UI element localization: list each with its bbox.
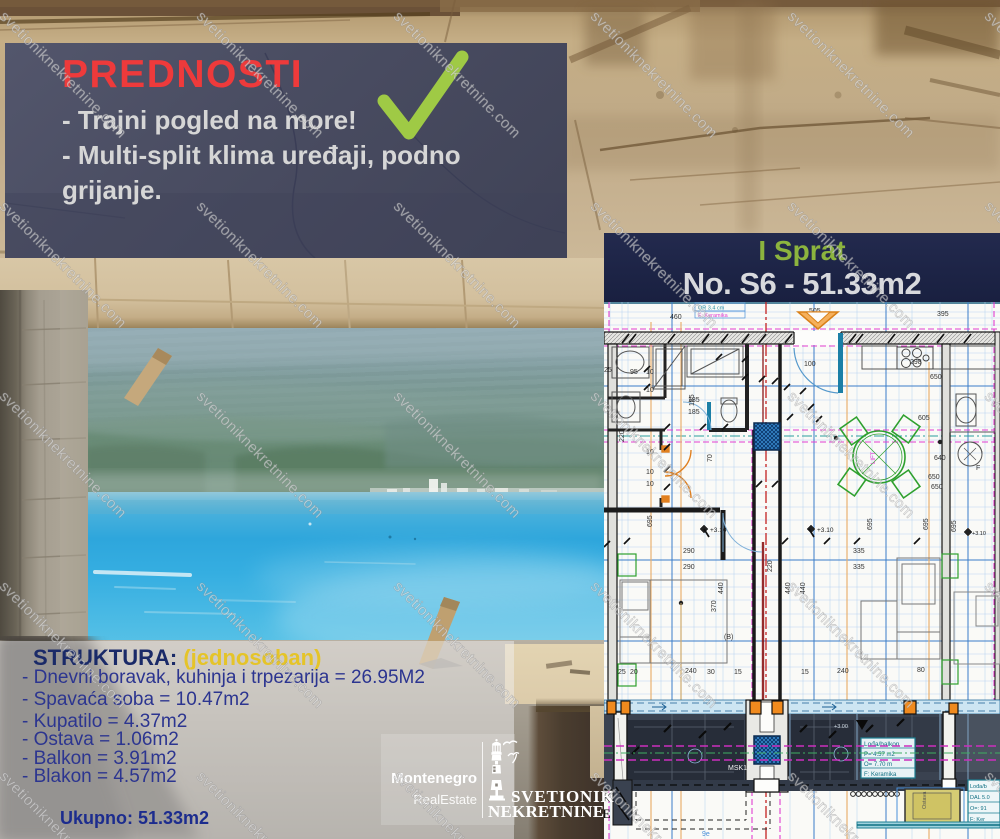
svg-text:15: 15	[734, 669, 742, 676]
svg-text:LIFT: LIFT	[871, 451, 877, 464]
svg-text:(B): (B)	[724, 634, 733, 641]
svg-text:640: 640	[934, 455, 946, 462]
svg-text:MSK1*: MSK1*	[728, 765, 750, 772]
svg-text:240: 240	[837, 668, 849, 675]
svg-text:395: 395	[937, 311, 949, 318]
svg-text:Ostava: Ostava	[922, 791, 928, 809]
svg-text:80: 80	[917, 667, 925, 674]
svg-text:695: 695	[951, 520, 958, 532]
svg-text:290: 290	[683, 548, 695, 555]
svg-text:650: 650	[930, 374, 942, 381]
svg-text:695: 695	[923, 518, 930, 530]
svg-text:95: 95	[630, 369, 638, 376]
svg-text:100: 100	[804, 361, 816, 368]
svg-text:20: 20	[630, 669, 638, 676]
svg-text:O=: 91: O=: 91	[970, 806, 987, 812]
svg-text:290: 290	[683, 564, 695, 571]
svg-text:10: 10	[646, 369, 654, 376]
svg-text:185: 185	[688, 409, 700, 416]
svg-text:Lođa/b: Lođa/b	[970, 784, 987, 790]
svg-text:25: 25	[618, 669, 626, 676]
svg-text:+3.10: +3.10	[817, 527, 834, 534]
svg-text:30: 30	[707, 669, 715, 676]
svg-text:220: 220	[767, 560, 774, 572]
svg-text:O= 7.70 m: O= 7.70 m	[864, 762, 892, 768]
svg-text:650: 650	[931, 484, 943, 491]
svg-text:335: 335	[853, 548, 865, 555]
svg-text:10: 10	[646, 469, 654, 476]
svg-text:440: 440	[718, 582, 725, 594]
svg-text:25: 25	[604, 367, 612, 374]
svg-text:+3.00: +3.00	[834, 724, 848, 730]
svg-text:335: 335	[853, 564, 865, 571]
svg-text:F: F	[976, 465, 980, 472]
svg-text:695: 695	[647, 515, 654, 527]
svg-text:E: E	[604, 806, 611, 821]
svg-text:DAL 5.0: DAL 5.0	[970, 795, 990, 801]
svg-text:70: 70	[707, 454, 714, 462]
svg-text:695: 695	[867, 518, 874, 530]
svg-text:460: 460	[670, 314, 682, 321]
svg-text:Lođa/balkon: Lođa/balkon	[864, 741, 900, 748]
svg-text:185: 185	[689, 394, 696, 406]
svg-text:+3.10: +3.10	[972, 531, 986, 537]
svg-text:+3.10: +3.10	[710, 527, 727, 534]
svg-text:650: 650	[928, 474, 940, 481]
svg-text:10: 10	[646, 481, 654, 488]
svg-text:605: 605	[918, 415, 930, 422]
svg-text:9e: 9e	[702, 831, 710, 838]
svg-text:370: 370	[711, 600, 718, 612]
svg-text:15: 15	[801, 669, 809, 676]
svg-text:10: 10	[646, 387, 654, 394]
svg-text:298: 298	[910, 359, 922, 366]
svg-text:F: Keramika: F: Keramika	[864, 772, 897, 778]
